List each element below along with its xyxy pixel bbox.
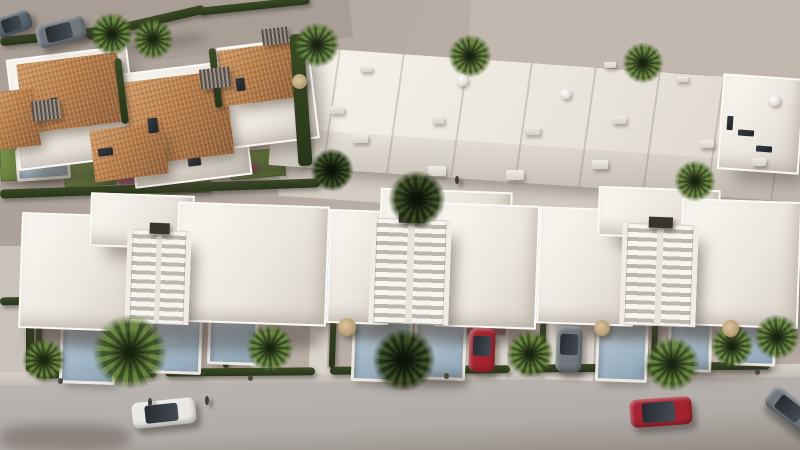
garden-parasol-tan <box>338 318 356 336</box>
roof-parasol-white <box>768 94 780 106</box>
roof-parasol-white <box>456 74 468 86</box>
garden-parasol-tan <box>722 320 739 337</box>
roof-parasol-white <box>560 88 571 99</box>
aerial-development-render: Aerial 3D architectural render of a resi… <box>0 0 800 450</box>
layer-umbrellas <box>0 0 800 450</box>
terrace-parasol-tan <box>292 74 307 89</box>
garden-parasol-tan <box>594 320 610 336</box>
